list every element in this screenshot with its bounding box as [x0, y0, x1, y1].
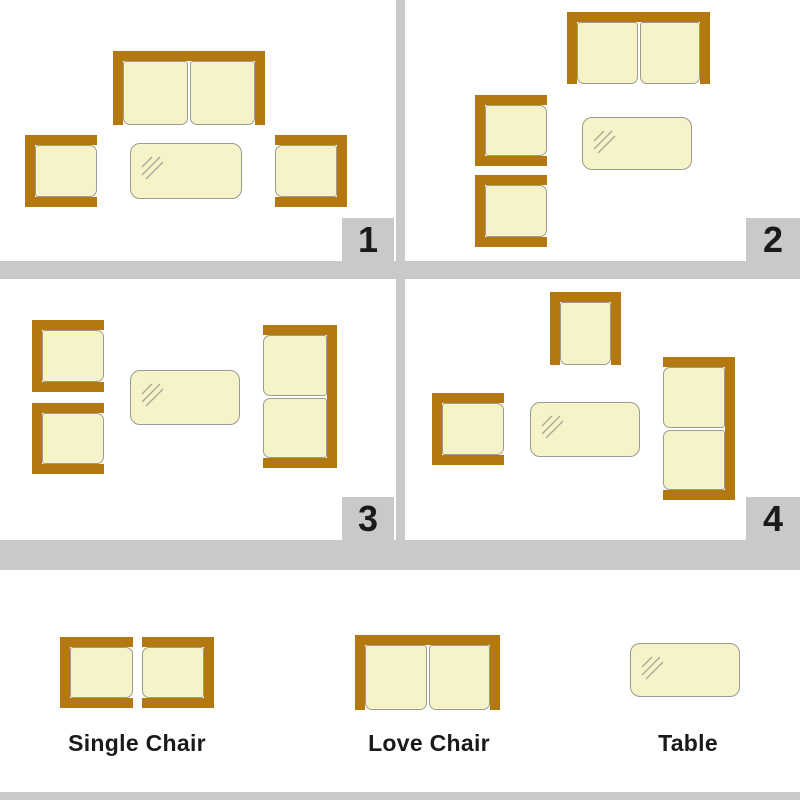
- panel-number-badge-2: 2: [746, 218, 800, 262]
- single-chair: [25, 135, 97, 207]
- cushion: [275, 145, 337, 197]
- cushion: [123, 61, 188, 125]
- table-shine-icon: [587, 122, 623, 158]
- cushion: [70, 647, 133, 698]
- cushion: [263, 335, 327, 396]
- cushion-group: [42, 330, 104, 382]
- panel-number-badge-4: 4: [746, 497, 800, 541]
- love-chair: [263, 325, 337, 468]
- divider-bar-horizontal-1: [0, 261, 800, 279]
- love-chair: [567, 12, 710, 84]
- cushion-group: [42, 413, 104, 464]
- cushion: [263, 398, 327, 459]
- legend-label-single-chair: Single Chair: [68, 730, 206, 757]
- cushion: [485, 105, 547, 156]
- panel-number-badge-1: 1: [342, 218, 394, 262]
- cushion-group: [365, 645, 490, 710]
- cushion-group: [123, 61, 255, 125]
- cushion: [560, 302, 611, 365]
- divider-bar-horizontal-2: [0, 540, 800, 570]
- table-shine-icon: [135, 148, 171, 184]
- panel-number-badge-3: 3: [342, 497, 394, 541]
- furniture-arrangement-diagram: 1 2 3 4 Single Chair Love Chair Table: [0, 0, 800, 800]
- single-chair: [432, 393, 504, 465]
- single-chair: [60, 637, 133, 708]
- cushion-group: [275, 145, 337, 197]
- cushion: [35, 145, 97, 197]
- cushion-group: [263, 335, 327, 458]
- single-chair: [475, 95, 547, 166]
- table-shine-icon: [535, 407, 571, 443]
- cushion-group: [35, 145, 97, 197]
- single-chair: [475, 175, 547, 247]
- cushion: [663, 430, 725, 491]
- love-chair: [663, 357, 735, 500]
- cushion: [577, 22, 638, 84]
- cushion: [442, 403, 504, 455]
- cushion-group: [142, 647, 204, 698]
- single-chair: [32, 320, 104, 392]
- cushion: [190, 61, 255, 125]
- cushion: [640, 22, 701, 84]
- cushion-group: [70, 647, 133, 698]
- single-chair: [550, 292, 621, 365]
- table: [630, 643, 740, 697]
- legend-label-table: Table: [658, 730, 718, 757]
- table-shine-icon: [635, 648, 671, 684]
- cushion: [142, 647, 204, 698]
- cushion: [429, 645, 491, 710]
- cushion-group: [485, 105, 547, 156]
- love-chair: [113, 51, 265, 125]
- cushion-group: [560, 302, 611, 365]
- table-shine-icon: [135, 375, 171, 411]
- cushion-group: [442, 403, 504, 455]
- love-chair: [355, 635, 500, 710]
- legend-label-love-chair: Love Chair: [368, 730, 490, 757]
- cushion: [485, 185, 547, 237]
- cushion: [42, 413, 104, 464]
- table: [130, 370, 240, 425]
- cushion: [42, 330, 104, 382]
- table: [582, 117, 692, 170]
- cushion: [663, 367, 725, 428]
- single-chair: [275, 135, 347, 207]
- cushion-group: [577, 22, 700, 84]
- cushion: [365, 645, 427, 710]
- single-chair: [142, 637, 214, 708]
- table: [530, 402, 640, 457]
- cushion-group: [485, 185, 547, 237]
- cushion-group: [663, 367, 725, 490]
- divider-bar-horizontal-3: [0, 792, 800, 800]
- single-chair: [32, 403, 104, 474]
- table: [130, 143, 242, 199]
